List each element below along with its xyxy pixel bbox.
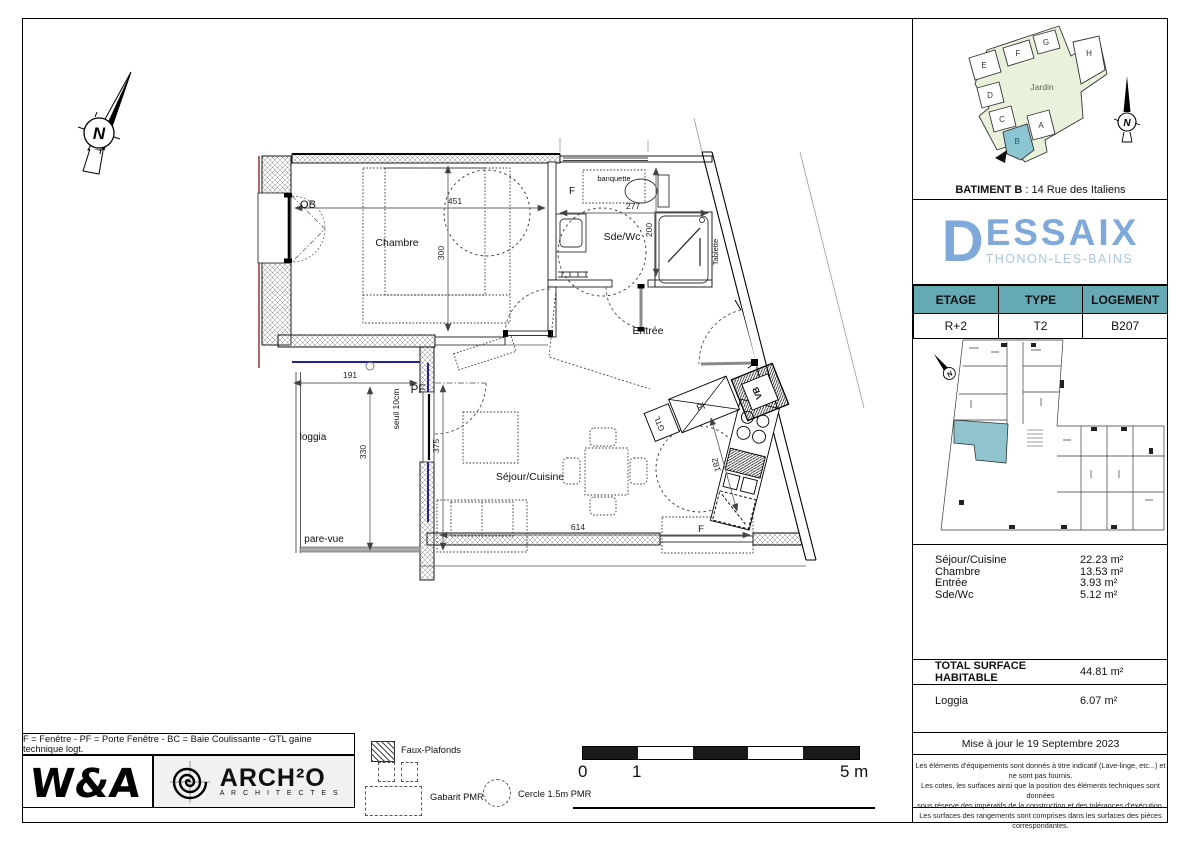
disclaimer-line: sous réserve des impératifs de la constr…: [913, 801, 1168, 811]
loggia-elements: [296, 372, 420, 553]
room-label-sejour: Séjour/Cuisine: [496, 471, 564, 483]
abbreviations-legend: F = Fenêtre - PF = Porte Fenêtre - BC = …: [22, 733, 355, 755]
ob-label: OB: [300, 199, 316, 211]
loggia-label: Loggia: [935, 695, 1080, 707]
wa-logo: W&A: [28, 757, 148, 807]
scale-segment: [748, 747, 803, 759]
total-label: TOTAL SURFACE HABITABLE: [935, 660, 1080, 684]
scale-five: 5 m: [840, 762, 868, 782]
north-arrow: N: [78, 72, 131, 174]
disclaimer: Les éléments d'équipements sont donnés à…: [913, 755, 1168, 808]
svg-text:D: D: [987, 91, 993, 100]
disclaimer-line: Les cotes, les surfaces ainsi que la pos…: [913, 781, 1168, 801]
f-sejour-label: F: [698, 524, 704, 535]
dessaix-logo: D ESSAIX THONON-LES-BAINS: [942, 216, 1140, 268]
svg-text:F: F: [1016, 49, 1021, 58]
svg-text:A: A: [1038, 121, 1044, 130]
key-plan-unit-highlight: [954, 420, 1008, 463]
surface-value: 3.93 m²: [1080, 578, 1117, 590]
dim-277: 277: [626, 201, 640, 211]
svg-text:H: H: [1086, 49, 1092, 58]
key-plan-svg: N: [913, 333, 1167, 543]
brand-section: D ESSAIX THONON-LES-BAINS: [913, 200, 1168, 285]
svg-text:C: C: [999, 115, 1005, 124]
surface-row: Séjour/Cuisine22.23 m²: [935, 555, 1168, 567]
surface-label: Entrée: [935, 578, 1080, 590]
key-plan-drawing: [941, 340, 1164, 530]
total-row: TOTAL SURFACE HABITABLE 44.81 m²: [913, 660, 1168, 685]
room-label-entree: Entrée: [633, 325, 664, 337]
surface-value: 22.23 m²: [1080, 555, 1123, 567]
disclaimer-line: Les éléments d'équipements sont donnés à…: [913, 761, 1168, 781]
header-etage: ETAGE: [914, 286, 999, 314]
sejour-furniture: [437, 412, 753, 553]
site-caption: BATIMENT B : 14 Rue des Italiens: [913, 184, 1168, 196]
plan-sheet: N: [0, 0, 1190, 841]
archo-subtitle: A R C H I T E C T E S: [220, 790, 340, 797]
total-value: 44.81 m²: [1080, 666, 1123, 678]
svg-text:N: N: [1123, 118, 1131, 129]
archo-logo-box: ARCH²O A R C H I T E C T E S: [153, 755, 355, 808]
pare-vue-label: pare-vue: [304, 534, 344, 545]
batiment-label: BATIMENT B: [955, 184, 1022, 196]
garden-label: Jardin: [1030, 82, 1053, 92]
dim-182: 182: [709, 456, 722, 473]
archo-name: ARCH²O: [220, 766, 340, 790]
footer-divider: [573, 807, 875, 809]
site-plan-section: A B C D E F G H Jardin N BATIMENT B :: [913, 18, 1168, 200]
svg-text:W&A: W&A: [28, 761, 143, 807]
dim-451: 451: [448, 196, 462, 206]
disclaimer-line: Les surfaces des rangements sont compris…: [913, 811, 1168, 831]
site-north-arrow: N: [1114, 76, 1140, 142]
surfaces-section: Séjour/Cuisine22.23 m² Chambre13.53 m² E…: [913, 545, 1168, 660]
pf-label: PF: [411, 384, 426, 396]
caption-separator: :: [1022, 184, 1031, 196]
faux-plafonds-label: Faux-Plafonds: [401, 745, 461, 755]
floor-plan-svg: N: [0, 0, 912, 841]
dim-191: 191: [343, 370, 357, 380]
logo-name: ESSAIX: [986, 216, 1140, 250]
loggia-value: 6.07 m²: [1080, 695, 1117, 707]
info-table-section: ETAGE TYPE LOGEMENT R+2 T2 B207: [913, 285, 1168, 333]
banquette-label: banquette: [597, 174, 630, 183]
surface-value: 5.12 m²: [1080, 590, 1117, 602]
room-label-loggia: loggia: [300, 432, 327, 443]
wa-logo-box: W&A: [22, 755, 153, 808]
surface-row: Entrée3.93 m²: [935, 578, 1168, 590]
scale-zero: 0: [578, 762, 587, 782]
header-logement: LOGEMENT: [1083, 286, 1168, 314]
gabarit-pmr-icon: [365, 786, 422, 816]
svg-text:G: G: [1043, 38, 1049, 47]
dim-330: 330: [358, 445, 368, 459]
placard-block: GTL Pl: [643, 376, 740, 443]
site-plan-svg: A B C D E F G H Jardin N: [913, 18, 1167, 180]
scale-segment: [583, 747, 638, 759]
surface-row: Sde/Wc5.12 m²: [935, 590, 1168, 602]
address-label: 14 Rue des Italiens: [1032, 184, 1126, 196]
scale-bar: [582, 746, 860, 760]
surface-label: Sde/Wc: [935, 590, 1080, 602]
cercle-pmr-icon: [483, 779, 511, 807]
info-table: ETAGE TYPE LOGEMENT R+2 T2 B207: [913, 285, 1168, 339]
svg-text:E: E: [981, 61, 986, 70]
dim-200: 200: [644, 223, 654, 237]
header-type: TYPE: [998, 286, 1083, 314]
title-block-panel: A B C D E F G H Jardin N BATIMENT B :: [912, 18, 1168, 822]
spiral-icon: [168, 759, 212, 805]
dimensions: [294, 166, 750, 550]
loggia-row: Loggia 6.07 m²: [913, 685, 1168, 733]
f-sdb-label: F: [569, 186, 575, 197]
room-label-chambre: Chambre: [375, 237, 418, 249]
faux-plafonds-swatch: [371, 741, 395, 762]
scale-segment: [638, 747, 693, 759]
tablette-label: Tablette: [711, 239, 720, 265]
update-date: Mise à jour le 19 Septembre 2023: [913, 733, 1168, 755]
key-plan-north-arrow: N: [929, 350, 958, 382]
dim-300: 300: [436, 246, 446, 260]
scale-one: 1: [632, 762, 641, 782]
seuil-label: seuil 10cm: [391, 389, 401, 430]
surface-label: Séjour/Cuisine: [935, 555, 1080, 567]
north-letter: N: [93, 124, 106, 143]
logo-city: THONON-LES-BAINS: [986, 252, 1140, 266]
surface-row: Chambre13.53 m²: [935, 567, 1168, 579]
site-pointer-icon: [995, 150, 1007, 163]
key-plan-section: N: [913, 333, 1168, 545]
cercle-pmr-label: Cercle 1.5m PMR: [518, 789, 591, 799]
scale-segment: [693, 747, 748, 759]
archo-logo-text: ARCH²O A R C H I T E C T E S: [220, 766, 340, 797]
svg-text:B: B: [1014, 137, 1019, 146]
gabarit-pmr-icon: [378, 762, 395, 782]
entree-boundary: [549, 290, 650, 389]
dim-375: 375: [431, 439, 441, 453]
logo-initial: D: [942, 216, 984, 268]
gabarit-pmr-label: Gabarit PMR: [430, 792, 484, 802]
gabarit-pmr-icon: [401, 762, 418, 782]
scale-segment: [803, 747, 859, 759]
room-label-sdwc: Sde/Wc: [604, 231, 641, 243]
dim-614: 614: [571, 522, 585, 532]
